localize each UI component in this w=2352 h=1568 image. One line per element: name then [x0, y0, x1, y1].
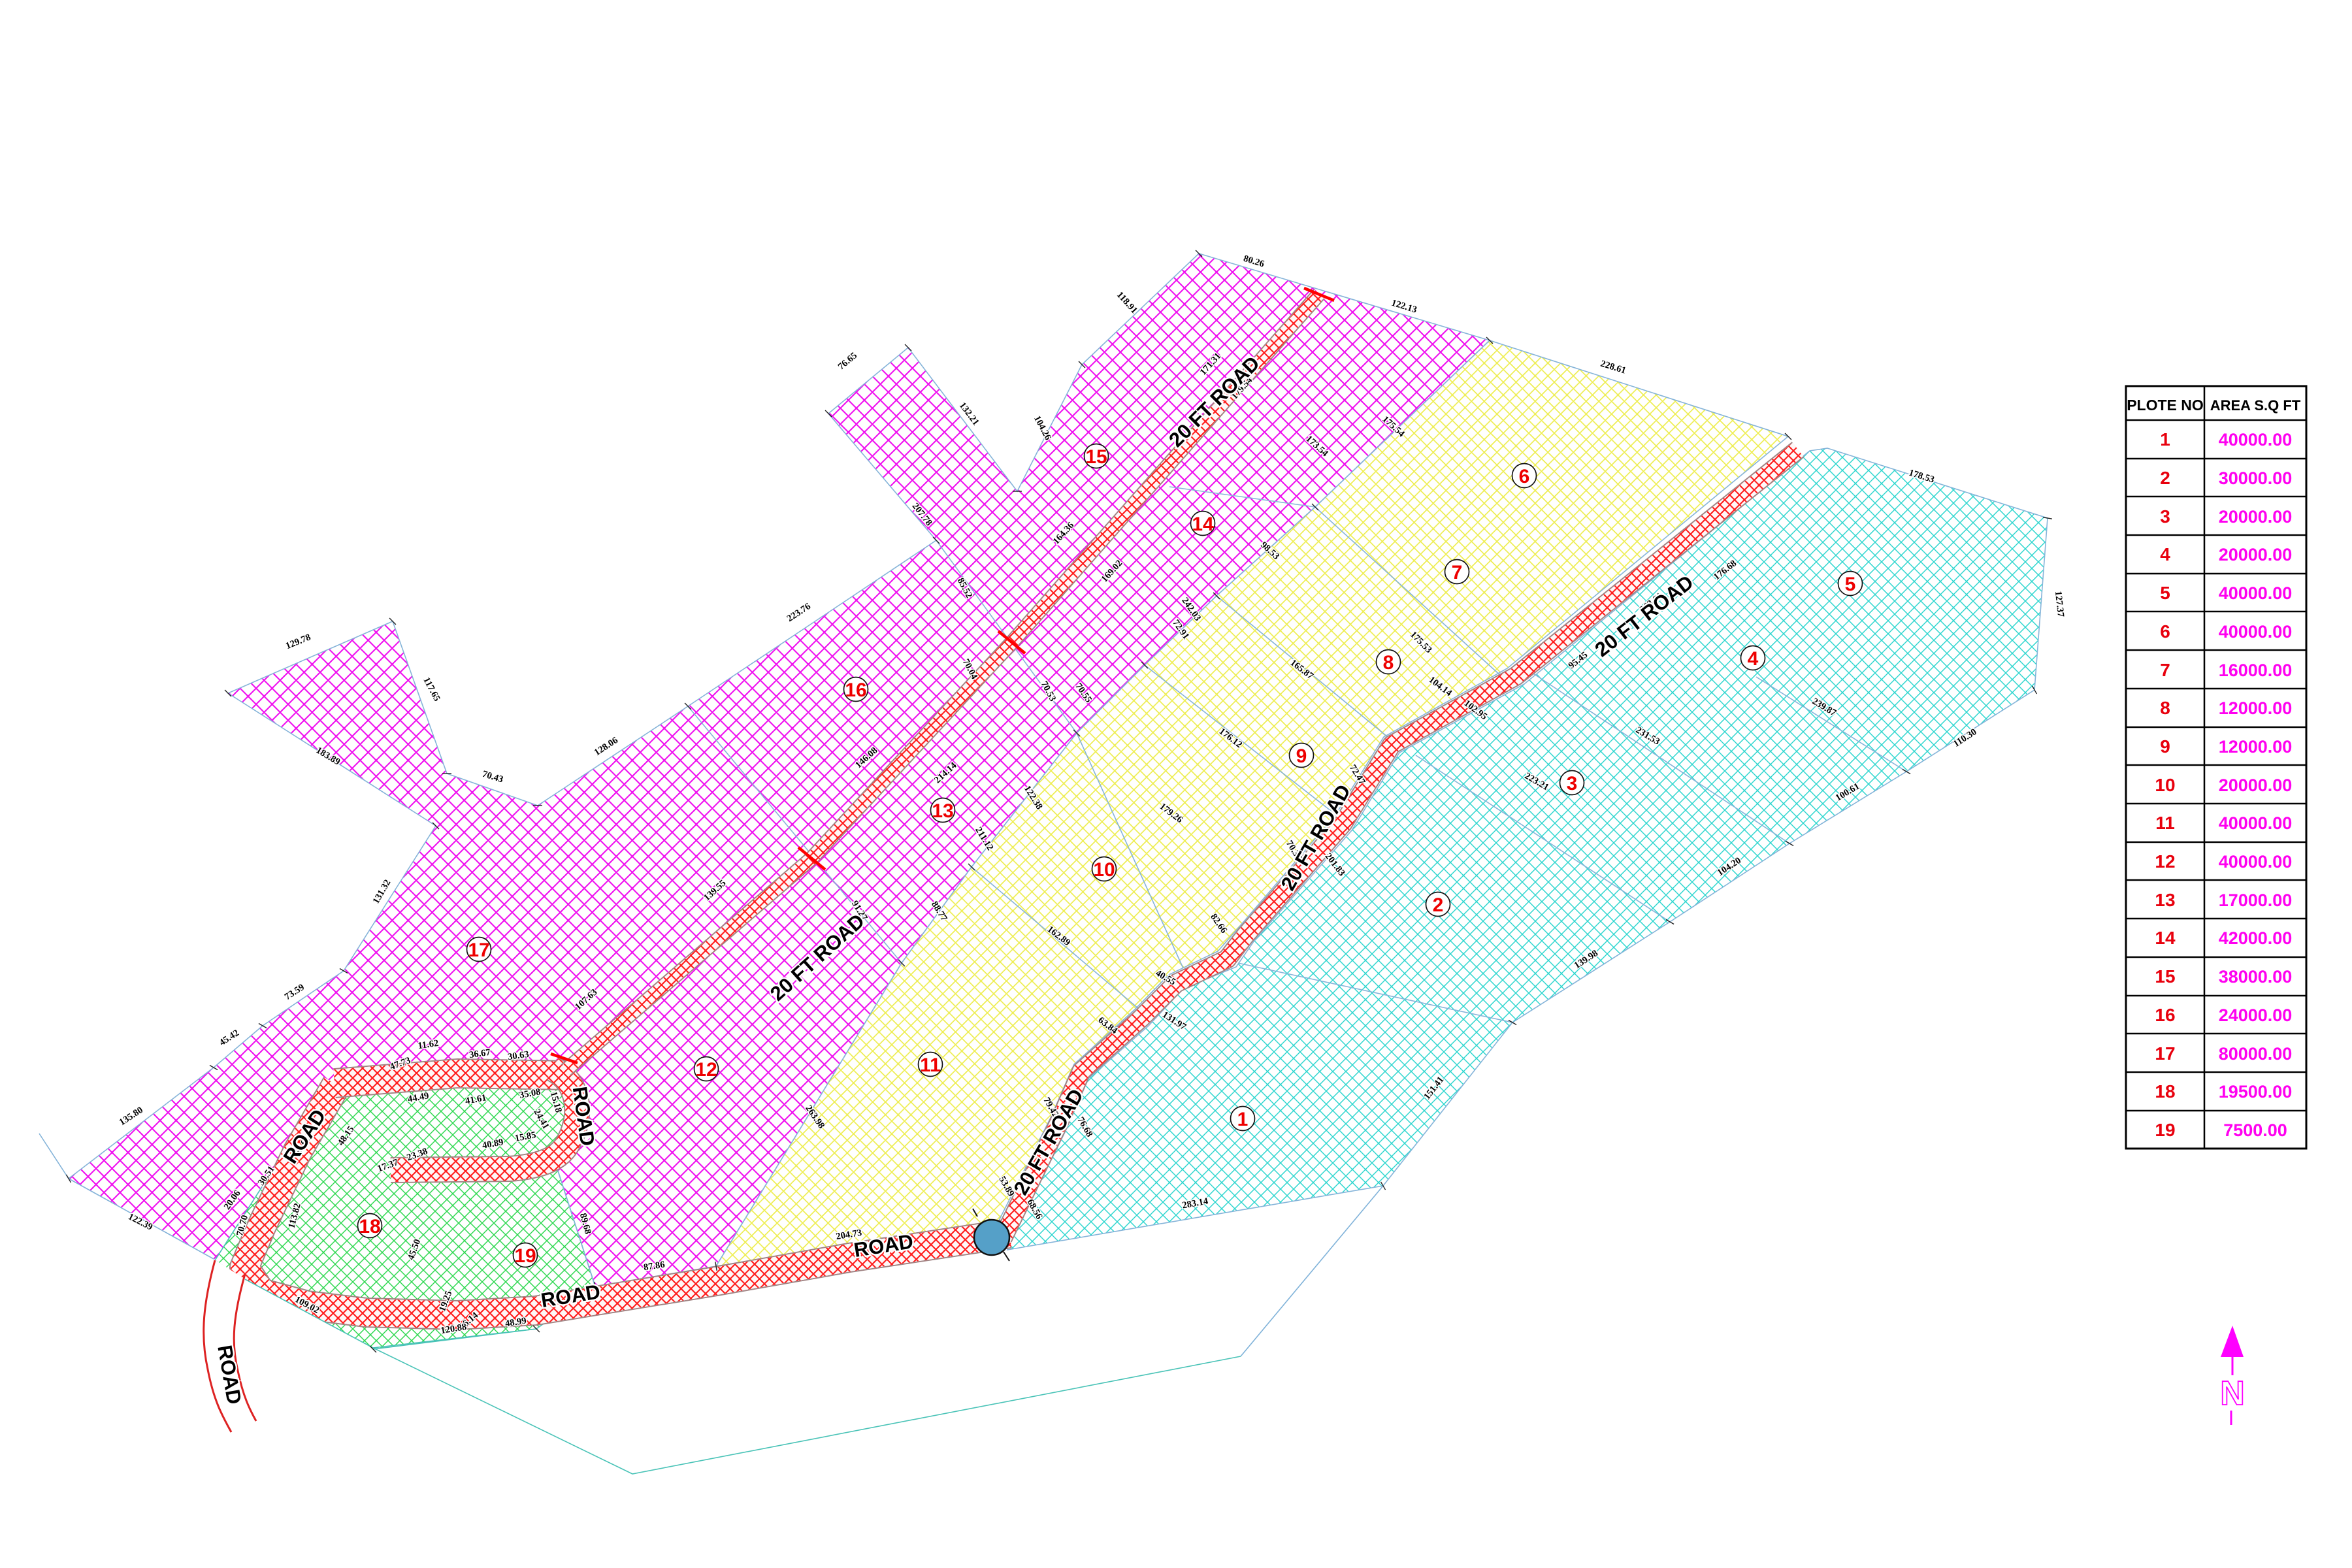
svg-text:30000.00: 30000.00 [2219, 468, 2293, 488]
svg-text:2: 2 [2160, 468, 2170, 488]
svg-text:14: 14 [2155, 928, 2176, 948]
svg-text:40000.00: 40000.00 [2219, 813, 2293, 833]
svg-text:11: 11 [2155, 813, 2175, 833]
svg-text:12: 12 [2155, 851, 2175, 872]
svg-text:38000.00: 38000.00 [2219, 967, 2293, 987]
svg-text:14: 14 [1192, 514, 1214, 535]
svg-text:PLOTE NO: PLOTE NO [2127, 397, 2204, 414]
svg-text:1: 1 [1237, 1109, 1249, 1130]
svg-text:7500.00: 7500.00 [2223, 1120, 2287, 1140]
svg-text:16: 16 [845, 679, 866, 701]
svg-text:16000.00: 16000.00 [2219, 661, 2293, 680]
svg-text:12000.00: 12000.00 [2219, 698, 2293, 718]
svg-text:19: 19 [2155, 1120, 2175, 1140]
svg-text:AREA S.Q FT: AREA S.Q FT [2210, 397, 2301, 414]
svg-text:11: 11 [920, 1054, 941, 1076]
svg-text:4: 4 [1748, 648, 1759, 670]
svg-text:15: 15 [2155, 966, 2175, 987]
svg-text:13: 13 [932, 800, 953, 822]
svg-text:15: 15 [1085, 446, 1107, 468]
svg-text:12000.00: 12000.00 [2219, 737, 2293, 757]
svg-text:20000.00: 20000.00 [2219, 776, 2293, 795]
svg-text:6: 6 [1519, 466, 1530, 487]
svg-text:7: 7 [2160, 660, 2170, 680]
svg-text:17: 17 [468, 939, 489, 961]
svg-text:5: 5 [1845, 574, 1856, 595]
svg-text:2: 2 [1433, 894, 1444, 916]
svg-text:3: 3 [1567, 773, 1578, 794]
svg-text:17000.00: 17000.00 [2219, 890, 2293, 910]
svg-text:N: N [2220, 1375, 2245, 1413]
svg-text:7: 7 [1452, 562, 1463, 583]
svg-text:80000.00: 80000.00 [2219, 1044, 2293, 1064]
svg-text:9: 9 [1296, 745, 1307, 767]
svg-text:10: 10 [2155, 775, 2175, 795]
svg-text:24000.00: 24000.00 [2219, 1005, 2293, 1025]
svg-text:16: 16 [2155, 1005, 2175, 1025]
svg-text:8: 8 [1383, 652, 1394, 674]
svg-text:17: 17 [2155, 1043, 2175, 1064]
svg-text:1: 1 [2160, 429, 2170, 449]
svg-text:3: 3 [2160, 506, 2170, 527]
svg-text:40000.00: 40000.00 [2219, 583, 2293, 603]
svg-text:13: 13 [2155, 890, 2175, 910]
svg-text:6: 6 [2160, 621, 2170, 642]
svg-text:4: 4 [2160, 544, 2170, 564]
svg-text:18: 18 [2155, 1081, 2175, 1102]
svg-text:40000.00: 40000.00 [2219, 852, 2293, 872]
svg-text:20000.00: 20000.00 [2219, 545, 2293, 564]
svg-text:12: 12 [695, 1059, 717, 1081]
svg-text:5: 5 [2160, 583, 2170, 603]
svg-text:40000.00: 40000.00 [2219, 430, 2293, 449]
svg-text:40000.00: 40000.00 [2219, 622, 2293, 642]
svg-text:8: 8 [2160, 698, 2170, 718]
svg-text:9: 9 [2160, 736, 2170, 757]
svg-text:18: 18 [359, 1216, 380, 1237]
svg-text:10: 10 [1093, 859, 1115, 881]
svg-text:42000.00: 42000.00 [2219, 928, 2293, 948]
svg-text:20000.00: 20000.00 [2219, 507, 2293, 527]
svg-text:19: 19 [514, 1245, 536, 1267]
svg-text:19500.00: 19500.00 [2219, 1082, 2293, 1102]
